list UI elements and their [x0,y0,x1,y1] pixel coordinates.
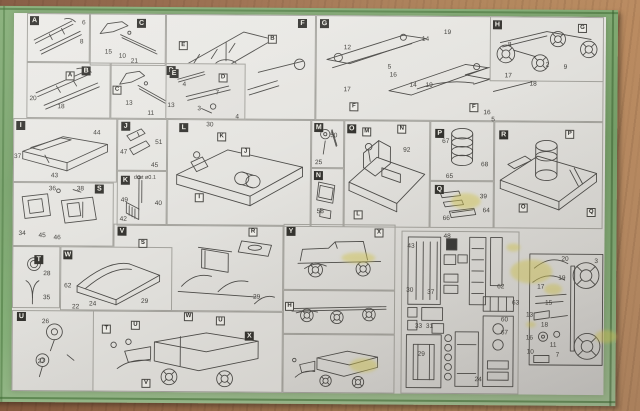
ref-badge-d: D [219,73,228,82]
part-number: 40 [155,200,162,207]
part-number: 9 [564,64,568,71]
box-border-line-right [609,10,614,406]
yellow-stain [595,330,617,343]
step-badge-a: A [30,16,39,25]
part-number: 48 [443,233,450,240]
wire-diameter-note: drut ø0.1 [134,175,156,181]
ref-badge-t: T [102,325,111,334]
yellow-stain [526,322,536,328]
step-panel-w [60,246,172,311]
part-number: 37 [14,153,21,160]
part-number: 67 [442,138,449,145]
ref-badge-w: W [184,312,193,321]
part-number: 46 [53,234,60,241]
assembly-drawing-sp1 [401,232,518,394]
part-number: 47 [120,149,127,156]
step-badge-w: W [63,250,72,259]
step-badge-x: X [245,332,254,341]
part-number: 27 [38,358,45,365]
step-badge-c: C [137,19,146,28]
part-number: 5 [491,116,495,123]
step-badge-u: U [17,312,26,321]
part-number: 16 [526,335,533,342]
part-number: 19 [426,82,433,89]
ref-badge-f: F [469,103,478,112]
part-number: 28 [43,270,50,277]
part-number: 62 [64,282,71,289]
box-tilt-wrapper: A68C151021FEBDGFF1214195161714191718165B… [0,0,640,411]
ref-badge-j: J [241,148,250,157]
part-number: 24 [89,300,96,307]
sprue-diagram-main [400,231,519,395]
part-number: 16 [390,72,397,79]
part-number: 7 [556,352,560,359]
ref-badge-i: I [195,193,204,202]
step-badge-g: G [320,19,329,28]
part-number: 14 [422,36,429,43]
yellow-stain [350,358,378,372]
ref-badge-l: L [354,210,363,219]
part-number: 8 [508,41,512,48]
part-number: 13 [526,312,533,319]
part-number: 60 [501,316,508,323]
assembly-drawing-c [91,14,165,65]
step-badge-h: H [493,20,502,29]
part-number: 26 [42,318,49,325]
step-badge-q: Q [435,185,444,194]
part-number: 3 [594,258,598,265]
part-number: 20 [561,256,568,263]
step-badge-n: N [314,171,323,180]
step-badge-f: F [298,19,307,28]
part-number: 31 [426,323,433,330]
part-number: 13 [167,102,174,109]
part-number: 43 [407,243,414,250]
part-number: 37 [427,289,434,296]
part-number: 29 [418,351,425,358]
ref-badge-m: M [362,127,371,136]
part-number: 16 [483,109,490,116]
chassis-side-panel [283,290,395,335]
ref-badge-p: P [565,130,574,139]
finished-truck-panel [282,334,394,394]
part-number: 22 [72,303,79,310]
step-panel-l [167,119,312,227]
part-number: 10 [119,53,126,60]
part-number: 2 [546,62,550,69]
step-badge-i: I [16,121,25,130]
part-number: 11 [550,342,557,349]
part-number: 15 [105,49,112,56]
step-panel-i [13,118,117,183]
assembly-drawing-l [168,120,311,226]
step-badge-e: E [170,69,179,78]
part-number: 19 [558,275,565,282]
step-badge-y: Y [286,227,295,236]
part-number: 12 [344,44,351,51]
part-number: 35 [43,294,50,301]
part-number: 17 [505,72,512,79]
part-number: 63 [512,299,519,306]
part-number: 64 [483,207,490,214]
part-number: 5 [388,64,392,71]
step-badge-k: K [121,176,130,185]
part-number: 25 [315,159,322,166]
ref-badge-h: H [285,302,294,311]
ref-badge-a: A [66,71,75,80]
part-number: 21 [131,58,138,65]
ref-badge-u: U [131,321,140,330]
part-number: 29 [253,294,260,301]
yellow-stain [506,243,520,251]
part-number: 18 [57,103,64,110]
step-badge-s: S [95,185,104,194]
step-badge-j: J [121,122,130,131]
box-border-line-bottom [0,397,615,403]
part-number: 30 [406,287,413,294]
part-number: 13 [125,100,132,107]
part-number: 38 [77,185,84,192]
part-number: 67 [501,329,508,336]
part-number: 45 [38,232,45,239]
part-number: 62 [497,283,504,290]
yellow-stain [510,259,552,283]
part-number: 18 [541,322,548,329]
part-number: 15 [545,300,552,307]
ref-badge-x: X [374,228,383,237]
part-number: 43 [51,172,58,179]
part-number: 44 [93,130,100,137]
part-number: 17 [537,284,544,291]
box-border-line-left [0,6,5,402]
part-number: 20 [29,95,36,102]
part-number: 39 [480,193,487,200]
instruction-sheet: A68C151021FEBDGFF1214195161714191718165B… [11,13,606,395]
part-number: 29 [141,298,148,305]
step-badge-v: V [117,227,126,236]
part-number: 3 [197,105,201,112]
part-number: 58 [317,208,324,215]
ref-badge-n: N [397,125,406,134]
part-number: 49 [121,197,128,204]
assembly-drawing-hc [284,291,394,334]
ref-badge-b: B [268,35,277,44]
step-panel-x [92,311,283,393]
ref-badge-e: E [179,41,188,50]
part-number: 36 [49,185,56,192]
part-number: 17 [343,86,350,93]
part-number: 10 [527,349,534,356]
step-badge-m: M [314,123,323,132]
part-number: 19 [444,29,451,36]
ref-badge-u: U [216,316,225,325]
part-number: 30 [206,121,213,128]
step-badge-l: L [179,123,188,132]
part-number: 66 [443,215,450,222]
ref-badge-s: S [138,239,147,248]
ref-badge-r: R [248,228,257,237]
part-number: 51 [155,139,162,146]
ref-badge-k: K [217,132,226,141]
assembly-drawing-i [14,119,116,182]
ref-badge-v: V [141,379,150,388]
ref-badge-g: G [578,24,587,33]
part-number: 42 [120,216,127,223]
part-number: 68 [481,161,488,168]
part-number: 14 [410,82,417,89]
part-number: 4 [183,81,187,88]
part-number: 92 [403,147,410,154]
step-panel-c [90,13,166,66]
part-number: 11 [147,110,154,117]
ref-badge-q: Q [587,208,596,217]
step-badge-t: T [34,255,43,264]
yellow-stain [341,252,375,263]
assembly-drawing-w [61,247,171,310]
part-number: 34 [18,230,25,237]
photo-model-kit-instructions: A68C151021FEBDGFF1214195161714191718165B… [0,0,640,411]
part-number: 18 [530,81,537,88]
ref-badge-f: F [349,102,358,111]
part-number: 7 [215,89,219,96]
part-number: 24 [474,376,481,383]
part-number: 33 [415,323,422,330]
part-number: 65 [446,173,453,180]
ref-badge-o: O [519,203,528,212]
part-number: 6 [82,19,86,26]
assembly-drawing-x [93,312,282,392]
ref-badge-c: C [112,86,121,95]
part-number: 4 [235,114,239,121]
step-badge-r: R [499,130,508,139]
part-number: 8 [80,38,84,45]
yellow-stain [451,193,481,209]
step-badge-o: O [347,124,356,133]
yellow-stain [544,284,562,295]
step-badge-p: P [435,129,444,138]
part-number: 45 [151,162,158,169]
part-number: 50 [330,132,337,139]
step-badge-b: B [82,66,91,75]
